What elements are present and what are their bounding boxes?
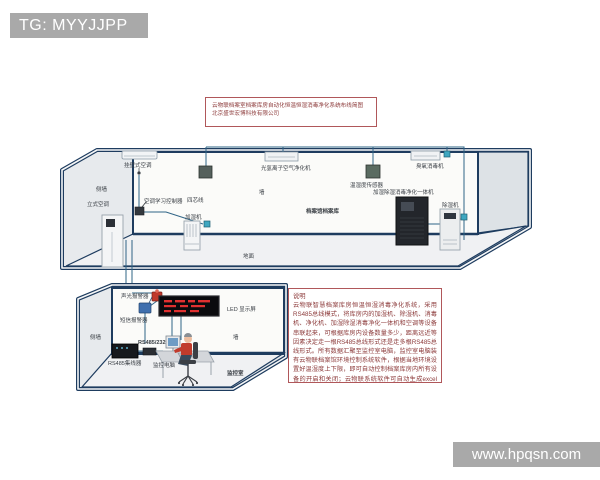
monitor-room: 侧墙 声光报警器 短信报警器 LED 显示屏 RS485/232 RS485集线…	[78, 285, 286, 389]
ozone-disinfector-unit	[411, 151, 440, 160]
label-dehumidifier: 除湿机	[442, 201, 459, 209]
rs485-hub-icon	[112, 344, 138, 358]
label-rs485-hub: RS485集线器	[108, 359, 142, 367]
label-wall-top: 墙	[259, 188, 265, 196]
diagram-page: TG: MYYJJPP 云物联档案室档案库房自动化恒温恒湿消毒净化系统布线简图 …	[0, 0, 600, 480]
watermark-text: www.hpqsn.com	[472, 446, 581, 463]
system-diagram: 挂壁式空调 侧墙 立式空调 空调学习控制器 四芯线 加湿机 光氢离子空气净化机 …	[0, 0, 600, 480]
label-four-core-wire: 四芯线	[187, 196, 204, 204]
description-body: 云物联智慧档案库房恒温恒湿消毒净化系统，采用RS485总线模式，将库房内的加湿机…	[293, 301, 437, 383]
rs485-232-converter-icon	[143, 348, 156, 355]
led-display-panel	[159, 296, 219, 316]
label-photo-ion-purifier: 光氢离子空气净化机	[261, 164, 311, 172]
watermark: www.hpqsn.com	[453, 442, 600, 467]
label-floor-ac: 立式空调	[87, 200, 110, 208]
all-in-one-machine-unit	[396, 197, 428, 245]
description-heading: 说明	[293, 292, 437, 301]
label-archive-room-name: 档案馆档案库	[305, 207, 340, 215]
archive-room-right-wall	[478, 152, 528, 233]
dehumidifier-unit	[440, 209, 460, 250]
label-sound-light-alarm: 声光报警器	[121, 292, 149, 300]
humidifier-unit	[184, 221, 200, 250]
label-rs485-232: RS485/232	[138, 340, 166, 346]
label-wall-bottom: 墙	[233, 333, 239, 341]
label-led-display: LED 显示屏	[227, 306, 256, 313]
label-ac-controller: 空调学习控制器	[144, 197, 183, 205]
label-ground: 地面	[243, 252, 255, 260]
label-side-wall-top: 侧墙	[96, 185, 108, 193]
label-humidifier: 加湿机	[185, 213, 202, 221]
temp-humidity-sensor-icon	[366, 165, 380, 178]
label-all-in-one: 加湿除湿消毒净化一体机	[373, 188, 434, 196]
floor-ac-unit	[102, 215, 123, 267]
label-sms-alarm: 短信报警器	[120, 316, 148, 324]
label-monitor-room-name: 监控室	[227, 369, 244, 377]
label-ozone-disinfector: 臭氧消毒机	[416, 162, 444, 170]
photo-ion-purifier-unit	[265, 152, 298, 161]
label-wall-ac: 挂壁式空调	[124, 161, 152, 169]
ceiling-sensor-icon	[199, 166, 212, 178]
label-side-wall-bottom: 侧墙	[90, 333, 102, 341]
description-box: 说明 云物联智慧档案库房恒温恒湿消毒净化系统，采用RS485总线模式，将库房内的…	[288, 288, 442, 383]
label-monitor-pc: 监控电脑	[153, 361, 176, 369]
label-temp-humidity-sensor: 温湿度传感器	[350, 181, 384, 189]
